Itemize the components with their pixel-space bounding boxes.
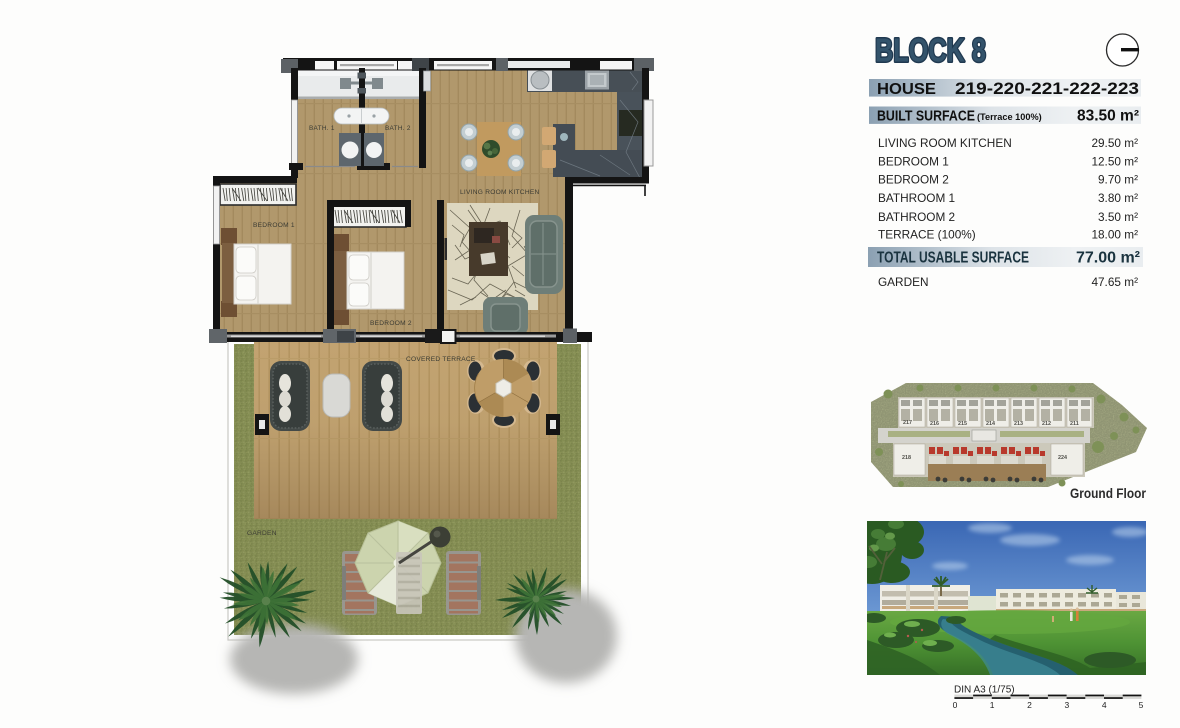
svg-text:4: 4	[1102, 700, 1107, 710]
svg-text:BEDROOM 1: BEDROOM 1	[878, 155, 949, 169]
svg-text:BEDROOM 2: BEDROOM 2	[878, 173, 949, 187]
svg-text:BEDROOM 1: BEDROOM 1	[253, 222, 295, 229]
svg-text:224: 224	[1058, 455, 1067, 461]
svg-text:217: 217	[903, 420, 912, 426]
svg-text:BATH. 2: BATH. 2	[385, 125, 411, 132]
svg-text:0: 0	[953, 700, 958, 710]
svg-text:211: 211	[1070, 421, 1079, 427]
svg-text:214: 214	[986, 421, 995, 427]
svg-text:BEDROOM 2: BEDROOM 2	[370, 320, 412, 327]
svg-text:HOUSE: HOUSE	[877, 81, 936, 98]
svg-text:BATHROOM 1: BATHROOM 1	[878, 191, 955, 205]
svg-text:12.50 m²: 12.50 m²	[1091, 155, 1138, 169]
svg-text:218: 218	[902, 455, 911, 461]
svg-text:5: 5	[1139, 700, 1144, 710]
svg-text:77.00 m²: 77.00 m²	[1076, 250, 1140, 267]
svg-text:9.70 m²: 9.70 m²	[1098, 173, 1138, 187]
svg-text:219-220-221-222-223: 219-220-221-222-223	[955, 80, 1139, 98]
svg-text:216: 216	[930, 421, 939, 427]
svg-text:83.50 m²: 83.50 m²	[1077, 108, 1139, 125]
svg-text:LIVING ROOM KITCHEN: LIVING ROOM KITCHEN	[460, 189, 540, 196]
svg-text:LIVING ROOM KITCHEN: LIVING ROOM KITCHEN	[878, 136, 1012, 150]
svg-text:3.50 m²: 3.50 m²	[1098, 210, 1138, 224]
svg-text:BATH. 1: BATH. 1	[309, 125, 335, 132]
svg-text:TOTAL USABLE SURFACE: TOTAL USABLE SURFACE	[877, 250, 1029, 267]
svg-text:18.00 m²: 18.00 m²	[1091, 228, 1138, 242]
svg-text:BUILT SURFACE: BUILT SURFACE	[877, 109, 975, 125]
svg-text:1: 1	[990, 700, 995, 710]
svg-text:BATHROOM 2: BATHROOM 2	[878, 210, 955, 224]
svg-text:DIN A3 (1/75): DIN A3 (1/75)	[954, 685, 1015, 696]
svg-text:215: 215	[958, 421, 967, 427]
svg-text:3: 3	[1065, 700, 1070, 710]
svg-text:BLOCK 8: BLOCK 8	[875, 32, 986, 69]
svg-text:TERRACE (100%): TERRACE (100%)	[878, 228, 976, 242]
svg-text:2: 2	[1027, 700, 1032, 710]
svg-text:47.65 m²: 47.65 m²	[1091, 275, 1138, 289]
svg-text:GARDEN: GARDEN	[247, 530, 277, 537]
svg-text:29.50 m²: 29.50 m²	[1091, 136, 1138, 150]
svg-text:213: 213	[1014, 421, 1023, 427]
svg-text:COVERED TERRACE: COVERED TERRACE	[406, 356, 476, 363]
svg-text:(Terrace 100%): (Terrace 100%)	[977, 112, 1042, 122]
svg-text:3.80 m²: 3.80 m²	[1098, 191, 1138, 205]
svg-text:Ground Floor: Ground Floor	[1070, 486, 1147, 501]
svg-text:212: 212	[1042, 421, 1051, 427]
svg-text:GARDEN: GARDEN	[878, 275, 928, 289]
